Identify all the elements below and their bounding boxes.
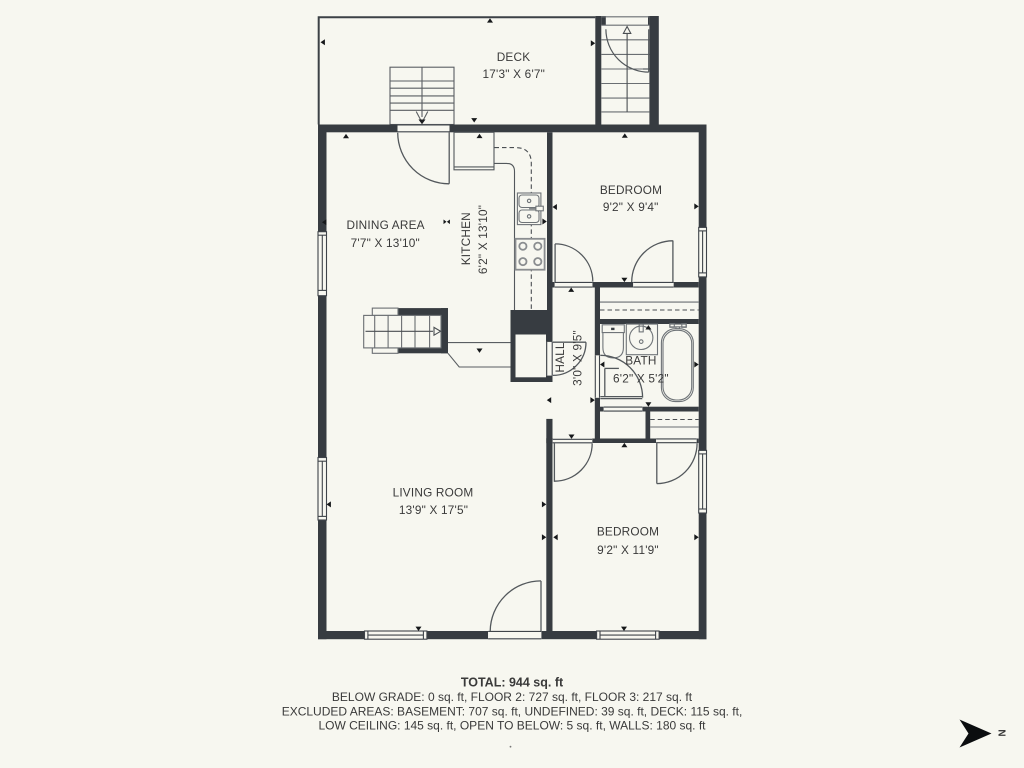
svg-text:13'9" X 17'5": 13'9" X 17'5" <box>399 503 468 517</box>
svg-text:BEDROOM: BEDROOM <box>600 183 662 197</box>
svg-text:BATH: BATH <box>625 354 656 368</box>
svg-text:3'0" X 9'5": 3'0" X 9'5" <box>571 330 585 386</box>
svg-text:HALL: HALL <box>553 342 567 373</box>
svg-text:DECK: DECK <box>497 50 531 64</box>
svg-text:6'2" X 5'2": 6'2" X 5'2" <box>613 372 669 386</box>
svg-text:KITCHEN: KITCHEN <box>459 212 473 265</box>
svg-text:7'7" X 13'10": 7'7" X 13'10" <box>351 236 420 250</box>
svg-text:17'3" X 6'7": 17'3" X 6'7" <box>483 67 546 81</box>
svg-text:BELOW GRADE: 0 sq. ft, FLOOR 2: BELOW GRADE: 0 sq. ft, FLOOR 2: 727 sq. … <box>332 690 693 704</box>
svg-text:N: N <box>996 729 1007 736</box>
svg-text:9'2" X 9'4": 9'2" X 9'4" <box>603 200 659 214</box>
svg-text:TOTAL: 944 sq. ft: TOTAL: 944 sq. ft <box>461 676 564 690</box>
svg-text:9'2" X 11'9": 9'2" X 11'9" <box>597 543 659 557</box>
svg-text:LOW CEILING: 145 sq. ft, OPEN: LOW CEILING: 145 sq. ft, OPEN TO BELOW: … <box>318 719 706 733</box>
svg-text:DINING AREA: DINING AREA <box>346 218 424 232</box>
svg-text:6'2" X 13'10": 6'2" X 13'10" <box>476 205 490 274</box>
svg-text:LIVING ROOM: LIVING ROOM <box>393 486 474 500</box>
svg-text:BEDROOM: BEDROOM <box>597 525 659 539</box>
svg-text:EXCLUDED AREAS: BASEMENT: 707: EXCLUDED AREAS: BASEMENT: 707 sq. ft, UN… <box>282 704 743 718</box>
